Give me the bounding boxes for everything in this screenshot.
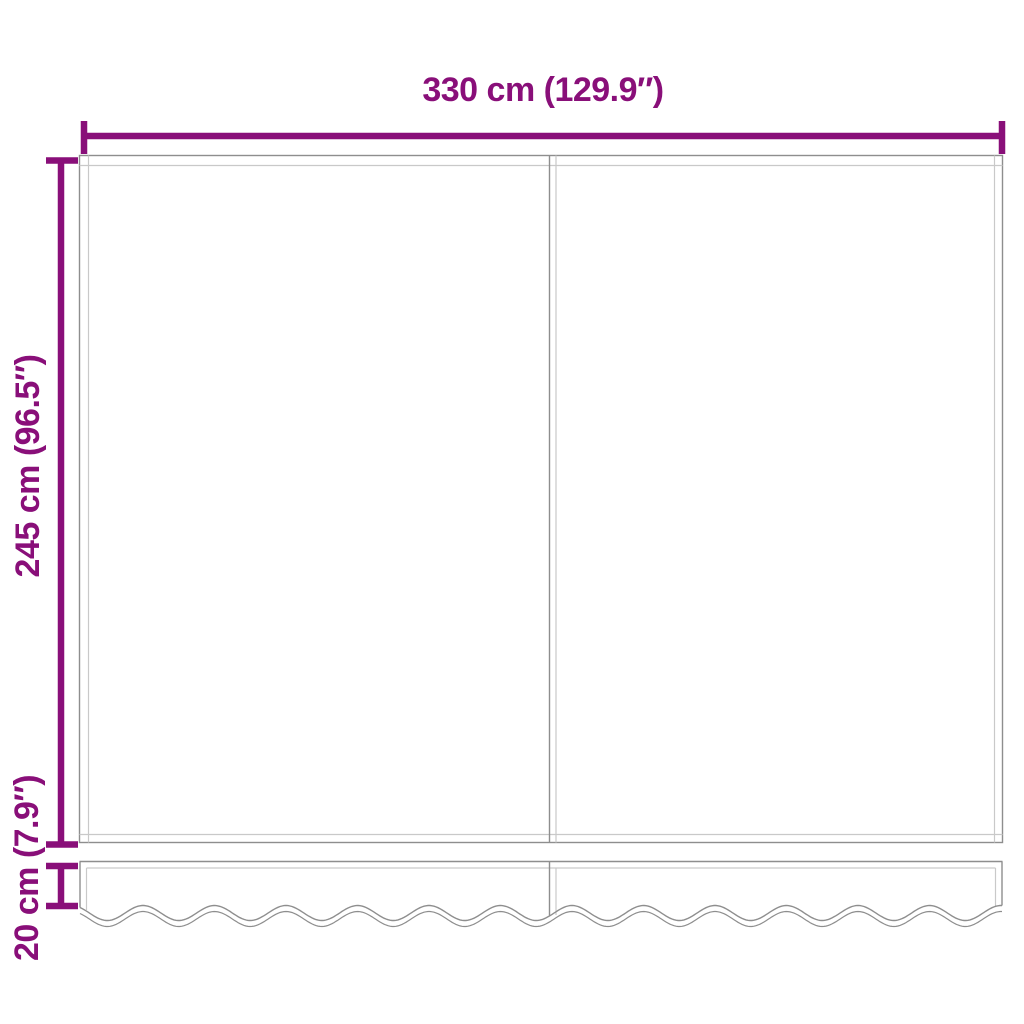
dimension-annotations: [46, 121, 1002, 906]
fabric-outline: [80, 156, 1003, 843]
valance-height-dimension-label: 20 cm (7.9″): [10, 775, 44, 961]
awning-fabric-drawing: [0, 0, 1024, 1024]
product-dimension-diagram: 330 cm (129.9″) 245 cm (96.5″) 20 cm (7.…: [0, 0, 1024, 1024]
height-dimension-label: 245 cm (96.5″): [11, 355, 45, 578]
fabric-panel: [80, 156, 1003, 843]
valance-wave-inner: [80, 912, 1002, 927]
valance: [80, 862, 1003, 927]
width-dimension-label: 330 cm (129.9″): [422, 73, 663, 107]
